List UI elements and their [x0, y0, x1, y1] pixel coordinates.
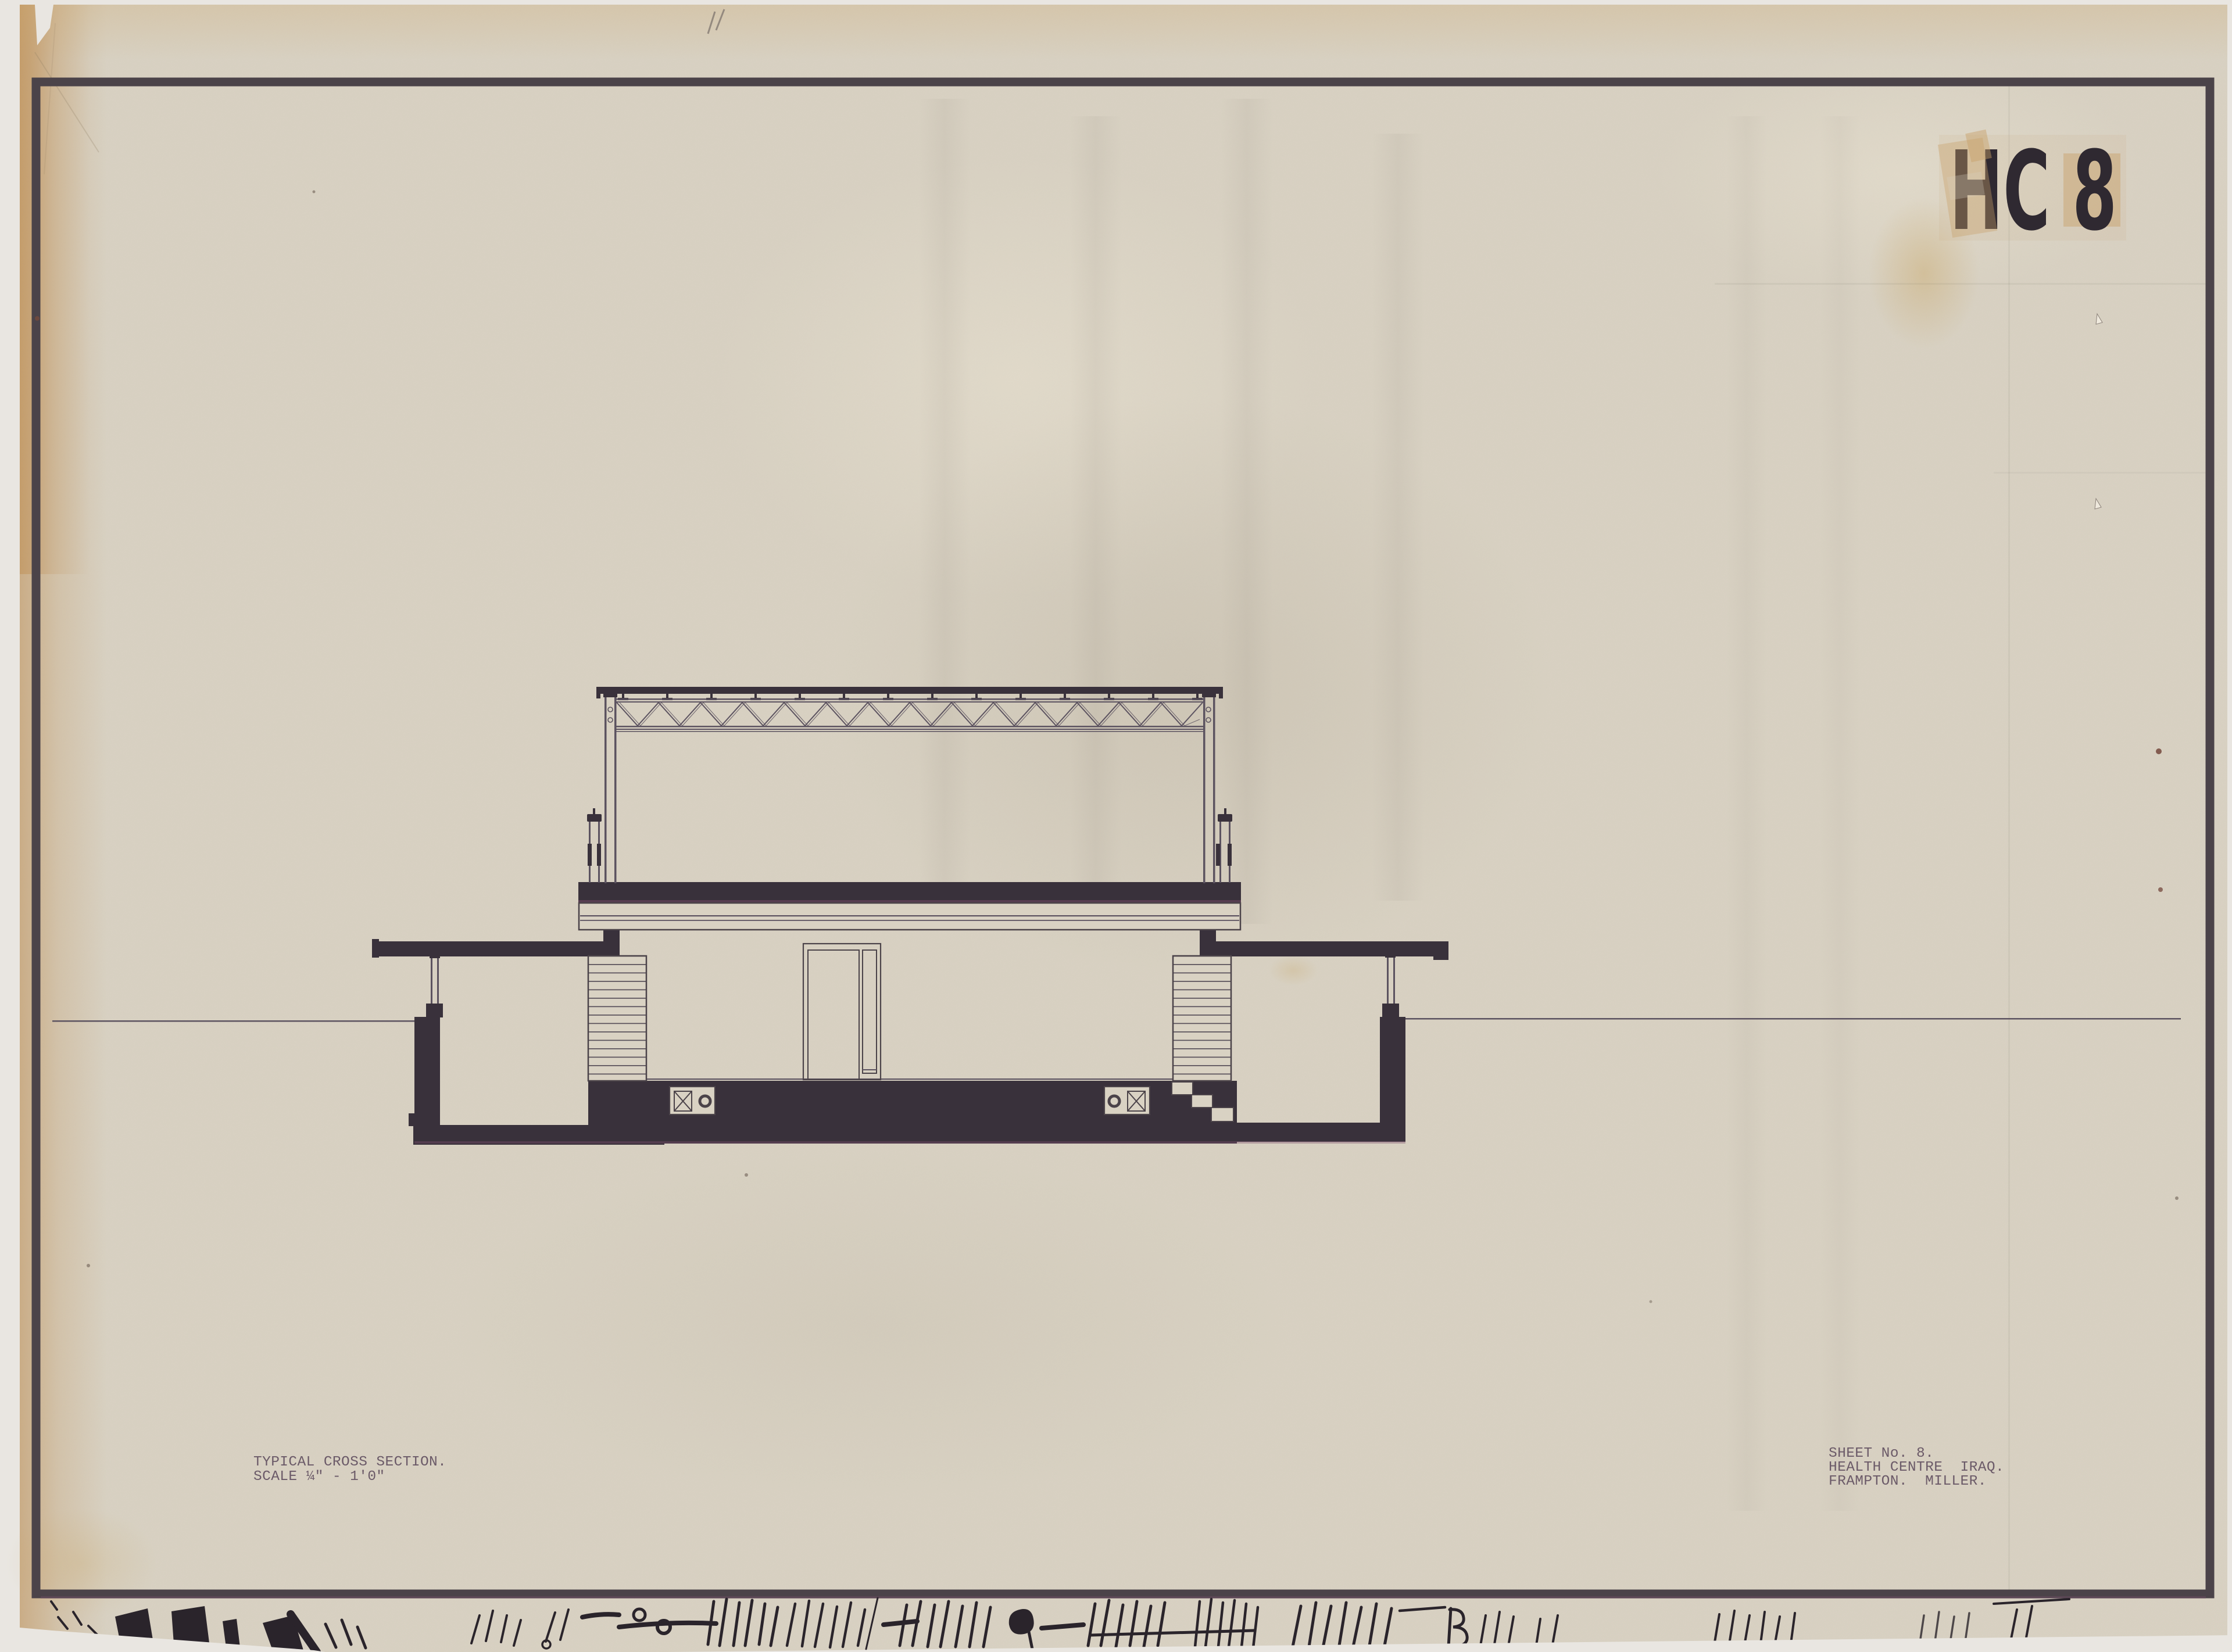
truss-bottom-chord	[615, 726, 1204, 728]
roof-deck	[598, 687, 1222, 694]
architects: FRAMPTON. MILLER.	[1829, 1474, 1987, 1489]
floor-box-left	[670, 1087, 715, 1115]
sheet-number: SHEET No. 8.	[1829, 1446, 1934, 1461]
pier-left	[588, 956, 646, 1081]
pier-right	[1173, 956, 1231, 1081]
paper-grain	[20, 5, 2227, 1652]
project-name: HEALTH CENTRE IRAQ.	[1829, 1460, 2004, 1475]
scanned-drawing-sheet: HC 8	[0, 0, 2232, 1652]
drawing-title: TYPICAL CROSS SECTION.	[253, 1454, 446, 1470]
sheet-stamp: HC 8	[1938, 128, 2126, 255]
truss-top-chord	[615, 698, 1204, 700]
floor-box-right	[1104, 1087, 1150, 1115]
paper-sheet	[6, 5, 2227, 1652]
roof-slab	[578, 882, 1241, 930]
drawing-scale: SCALE ¼" - 1'0"	[253, 1469, 385, 1485]
